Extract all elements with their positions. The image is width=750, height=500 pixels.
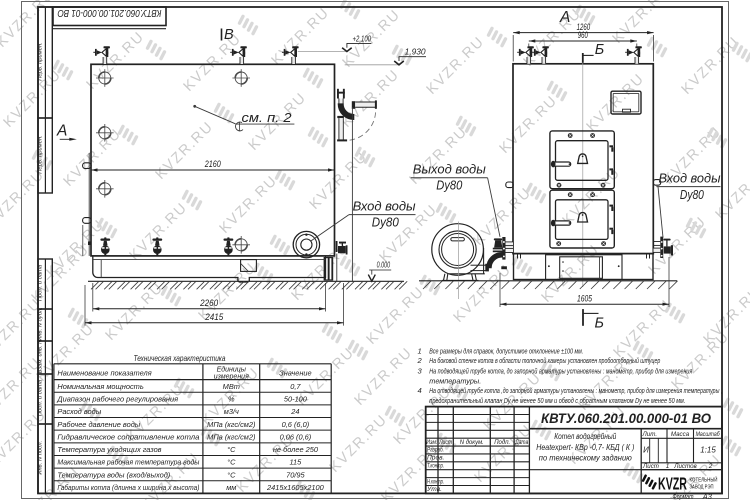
svg-text:Формат: Формат <box>673 494 694 500</box>
svg-text:Масштаб: Масштаб <box>696 431 720 438</box>
svg-text:м3/ч: м3/ч <box>224 407 239 416</box>
svg-text:Dy80: Dy80 <box>680 188 704 202</box>
svg-text:Листов: Листов <box>673 463 697 470</box>
svg-text:Все размеры для справок, допус: Все размеры для справок, допустимое откл… <box>429 346 583 355</box>
svg-text:КОТЕЛЬНЫЙ: КОТЕЛЬНЫЙ <box>690 476 718 484</box>
svg-text:ЗАВОД РЭП: ЗАВОД РЭП <box>690 485 714 491</box>
svg-text:Подп.: Подп. <box>494 439 510 446</box>
svg-text:Котел водогрейный: Котел водогрейный <box>554 431 616 441</box>
svg-text:Б: Б <box>595 316 604 332</box>
svg-text:4: 4 <box>418 386 422 395</box>
svg-text:Максимальная рабочая температу: Максимальная рабочая температура воды <box>57 458 200 467</box>
svg-text:КВТУ.060.201.00.000-01 ВО: КВТУ.060.201.00.000-01 ВО <box>57 7 161 18</box>
svg-text:Н.контр.: Н.контр. <box>427 478 444 485</box>
svg-text:0,6 (6,0): 0,6 (6,0) <box>282 420 310 429</box>
svg-text:Габариты котла (длинна х ширин: Габариты котла (длинна х ширина х высота… <box>57 483 199 492</box>
svg-text:2260: 2260 <box>199 298 218 309</box>
svg-text:А3: А3 <box>702 492 713 500</box>
svg-text:2: 2 <box>708 463 713 470</box>
svg-text:0,06 (0,6): 0,06 (0,6) <box>280 432 312 441</box>
svg-text:0.000: 0.000 <box>377 261 391 270</box>
svg-text:Утв.: Утв. <box>426 486 442 493</box>
svg-text:Наименование показателя: Наименование показателя <box>57 369 151 378</box>
svg-text:Масса: Масса <box>671 431 690 438</box>
svg-text:Дата: Дата <box>514 439 528 446</box>
svg-text:Рабочее давление воды: Рабочее давление воды <box>57 420 140 429</box>
svg-text:Лист: Лист <box>438 439 452 446</box>
svg-text:Гидравлическое сопративление к: Гидравлическое сопративление котла <box>57 432 199 441</box>
svg-text:1,930: 1,930 <box>405 48 427 57</box>
svg-text:предохранительный клапан Dу н: предохранительный клапан Dу не менее 50 … <box>429 396 685 405</box>
svg-text:Температура воды (вход/выход): Температура воды (вход/выход) <box>57 470 170 479</box>
svg-text:И: И <box>643 446 649 455</box>
svg-text:1: 1 <box>418 346 422 355</box>
svg-text:Вход воды: Вход воды <box>659 171 721 186</box>
svg-text:Лист: Лист <box>642 463 659 470</box>
svg-text:Dy80: Dy80 <box>372 216 399 230</box>
svg-text:Изм.: Изм. <box>426 439 437 446</box>
svg-text:Перв. примен.: Перв. примен. <box>38 135 44 174</box>
svg-text:Взам. инв. N: Взам. инв. N <box>38 339 44 374</box>
svg-text:2415: 2415 <box>204 312 223 323</box>
svg-text:Диапазон рабочего регулировани: Диапазон рабочего регулирования <box>56 394 178 403</box>
svg-text:Инв. N подл.: Инв. N подл. <box>38 441 44 475</box>
svg-text:Т.контр.: Т.контр. <box>427 463 444 470</box>
svg-text:мм: мм <box>226 483 236 492</box>
svg-text:Б: Б <box>595 42 604 58</box>
svg-text:А: А <box>559 9 570 26</box>
svg-text:Перв. примен.: Перв. примен. <box>38 42 44 81</box>
svg-text:115: 115 <box>290 458 303 467</box>
svg-text:Инв. N дубл.: Инв. N дубл. <box>38 307 44 341</box>
svg-text:1:15: 1:15 <box>700 446 716 455</box>
svg-text:Расход воды: Расход воды <box>57 407 101 416</box>
svg-text:Подп. и дата: Подп. и дата <box>38 379 44 416</box>
svg-text:КВТУ.060.201.00.000-01 ВО: КВТУ.060.201.00.000-01 ВО <box>541 411 711 427</box>
svg-text:°С: °С <box>227 445 236 454</box>
svg-text:Вход воды: Вход воды <box>353 199 416 214</box>
svg-text:2160: 2160 <box>204 159 221 170</box>
svg-text:измерения: измерения <box>214 374 249 381</box>
svg-text:KVZR: KVZR <box>658 473 687 493</box>
svg-text:Разраб.: Разраб. <box>427 446 444 454</box>
svg-text:Единицы: Единицы <box>217 366 247 374</box>
svg-text:МПа (кгс/см2): МПа (кгс/см2) <box>207 420 256 429</box>
svg-text:Heatexpert- КВр -0,7- КБД ( К: Heatexpert- КВр -0,7- КБД ( К ) <box>536 442 634 452</box>
svg-text:На боковой стенке котла в обла: На боковой стенке котла в области топочн… <box>429 356 660 365</box>
svg-text:Лит.: Лит. <box>642 431 658 438</box>
svg-text:0,7: 0,7 <box>290 382 301 391</box>
svg-text:А: А <box>56 123 67 140</box>
svg-text:Выход воды: Выход воды <box>413 162 486 177</box>
svg-text:24: 24 <box>290 407 299 416</box>
svg-text:Номинальная мощность: Номинальная мощность <box>57 382 143 391</box>
svg-text:Подп. и дата: Подп. и дата <box>38 264 44 301</box>
svg-text:по техническому заданию: по техническому заданию <box>539 453 632 463</box>
svg-text:1605: 1605 <box>577 293 593 303</box>
svg-text:МПа (кгс/см2): МПа (кгс/см2) <box>207 432 256 441</box>
svg-text:2: 2 <box>417 356 423 365</box>
svg-text:70/95: 70/95 <box>286 470 305 479</box>
svg-text:%: % <box>228 394 235 403</box>
svg-text:не более 250: не более 250 <box>273 445 319 454</box>
svg-text:°С: °С <box>227 470 236 479</box>
svg-text:Пров.: Пров. <box>427 455 445 462</box>
svg-text:На подводящей трубе котла, д: На подводящей трубе котла, до запорной а… <box>429 367 692 376</box>
svg-text:На отводящей трубе котла ,до з: На отводящей трубе котла ,до запорной ар… <box>429 386 722 395</box>
svg-text:температуры.: температуры. <box>429 376 481 385</box>
svg-text:N докум.: N докум. <box>460 439 484 446</box>
svg-text:2415х1605х2100: 2415х1605х2100 <box>266 483 325 492</box>
svg-text:см. п. 2: см. п. 2 <box>242 110 293 125</box>
svg-text:МВт: МВт <box>223 382 240 391</box>
svg-text:Температура уходящих газов: Температура уходящих газов <box>57 445 161 454</box>
svg-text:Dy80: Dy80 <box>436 179 462 193</box>
svg-text:°С: °С <box>227 458 236 467</box>
svg-text:Значение: Значение <box>279 369 311 378</box>
svg-text:Техническая характеристика: Техническая характеристика <box>134 354 226 363</box>
svg-text:1: 1 <box>666 463 670 470</box>
svg-text:50-100: 50-100 <box>284 394 308 403</box>
svg-text:В: В <box>224 27 234 43</box>
svg-text:960: 960 <box>578 30 588 40</box>
svg-text:+2,100: +2,100 <box>353 34 372 43</box>
